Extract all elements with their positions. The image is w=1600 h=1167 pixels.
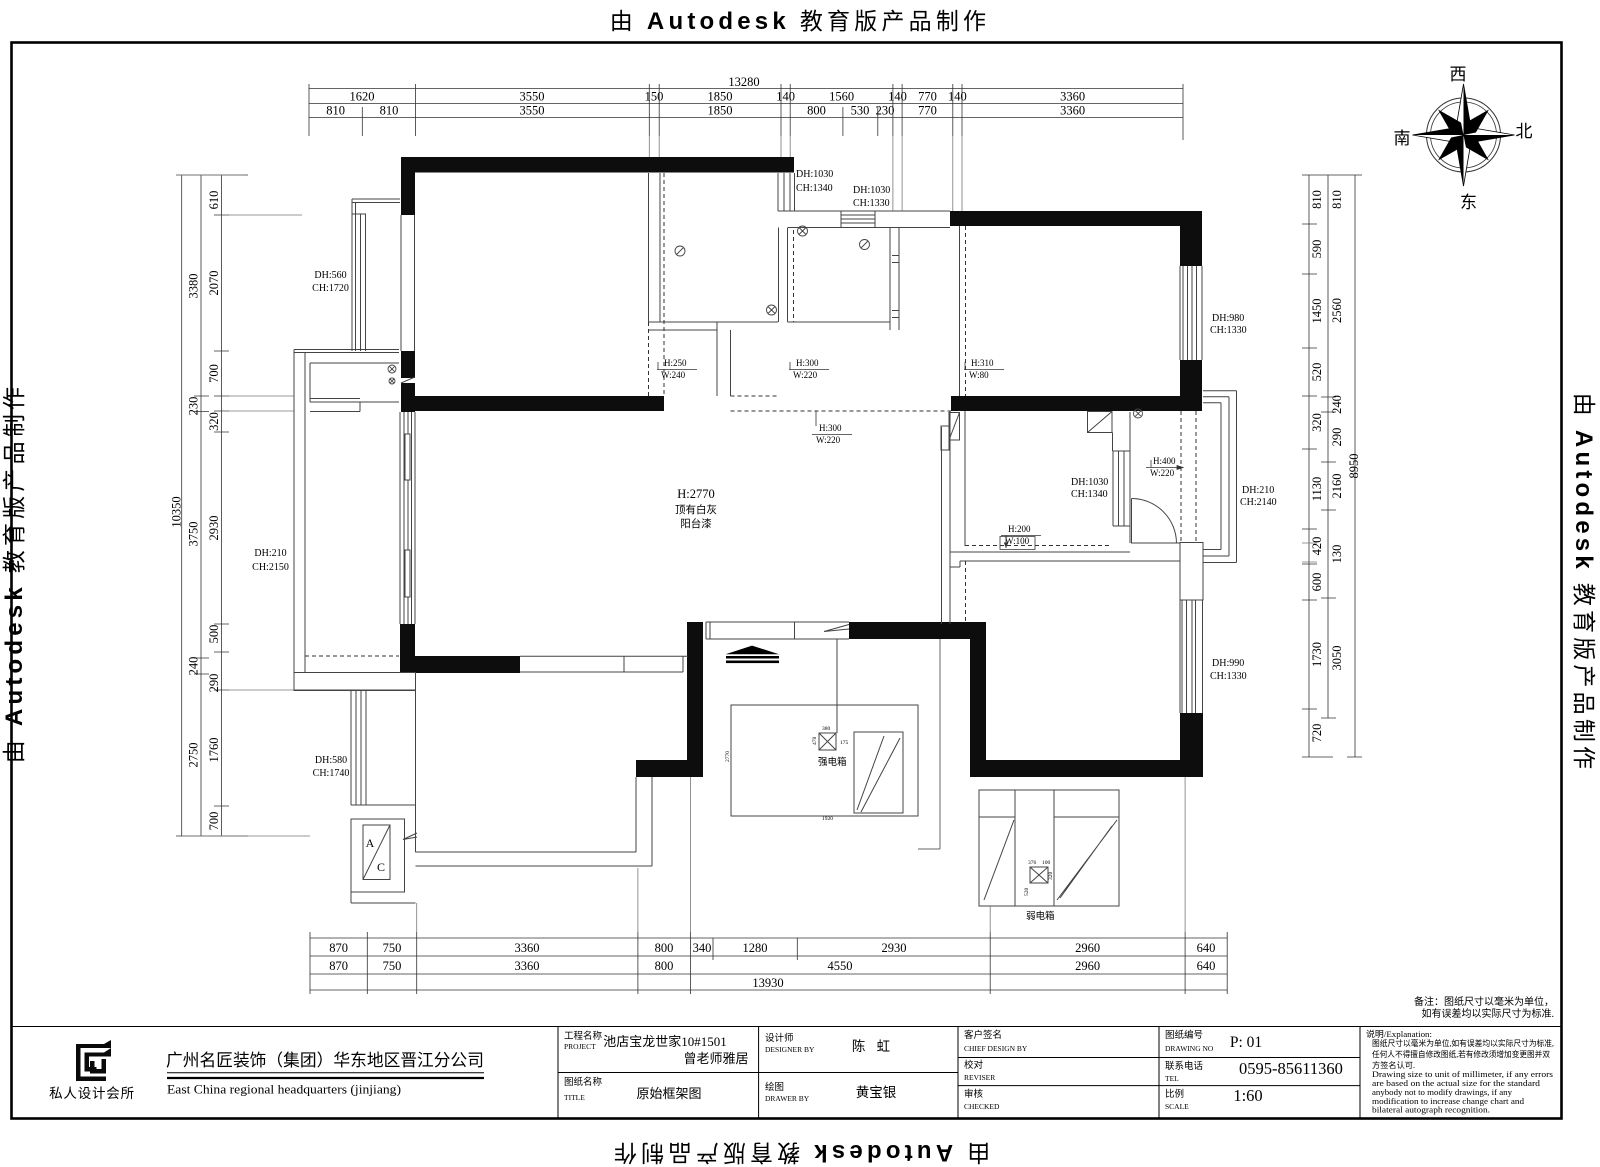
svg-text:2160: 2160 xyxy=(1330,474,1344,499)
svg-text:1730: 1730 xyxy=(1310,642,1324,667)
svg-text:广州名匠装饰（集团）华东地区晋江分公司: 广州名匠装饰（集团）华东地区晋江分公司 xyxy=(166,1051,484,1070)
svg-text:3380: 3380 xyxy=(187,274,201,299)
svg-text:810: 810 xyxy=(380,104,399,118)
svg-text:530: 530 xyxy=(851,104,870,118)
svg-text:1280: 1280 xyxy=(743,941,768,955)
svg-text:610: 610 xyxy=(207,191,221,210)
svg-text:DRAWING NO: DRAWING NO xyxy=(1165,1044,1214,1053)
svg-text:W:80: W:80 xyxy=(969,370,989,380)
svg-text:2750: 2750 xyxy=(187,743,201,768)
svg-text:770: 770 xyxy=(918,104,937,118)
svg-text:140: 140 xyxy=(776,90,795,104)
svg-text:340: 340 xyxy=(693,941,712,955)
svg-text:2930: 2930 xyxy=(207,516,221,541)
svg-text:240: 240 xyxy=(187,657,201,676)
svg-text:CH:1330: CH:1330 xyxy=(1210,671,1247,682)
svg-text:REVISER: REVISER xyxy=(964,1073,995,1082)
svg-text:2770: 2770 xyxy=(725,751,731,762)
svg-text:East China regional headquarte: East China regional headquarters (jinjia… xyxy=(167,1083,401,1097)
svg-text:CH:1740: CH:1740 xyxy=(313,768,350,779)
svg-text:810: 810 xyxy=(1330,190,1344,209)
svg-text:320: 320 xyxy=(1310,413,1324,432)
svg-text:640: 640 xyxy=(1197,959,1216,973)
svg-text:DRAWER BY: DRAWER BY xyxy=(765,1094,810,1103)
svg-text:W:220: W:220 xyxy=(1150,468,1175,478)
svg-text:图纸名称: 图纸名称 xyxy=(564,1076,603,1088)
svg-text:500: 500 xyxy=(207,625,221,644)
svg-text:750: 750 xyxy=(383,941,402,955)
svg-text:870: 870 xyxy=(329,941,348,955)
svg-text:TEL: TEL xyxy=(1165,1074,1179,1083)
svg-text:CH:1330: CH:1330 xyxy=(853,198,890,209)
svg-text:2560: 2560 xyxy=(1330,298,1344,323)
svg-text:顶有白灰: 顶有白灰 xyxy=(675,503,717,516)
svg-text:600: 600 xyxy=(1310,573,1324,592)
svg-text:150: 150 xyxy=(645,90,664,104)
svg-text:北: 北 xyxy=(1516,122,1533,141)
svg-text:阳台漆: 阳台漆 xyxy=(680,517,712,530)
svg-text:2960: 2960 xyxy=(1075,941,1100,955)
svg-text:640: 640 xyxy=(1197,941,1216,955)
svg-text:130: 130 xyxy=(1330,545,1344,564)
svg-text:800: 800 xyxy=(807,104,826,118)
svg-text:0595-85611360: 0595-85611360 xyxy=(1239,1059,1343,1078)
svg-text:DH:210: DH:210 xyxy=(254,548,286,559)
svg-text:750: 750 xyxy=(383,959,402,973)
svg-text:东: 东 xyxy=(1460,193,1477,212)
svg-text:376: 376 xyxy=(1028,860,1037,866)
svg-text:C: C xyxy=(377,860,385,874)
svg-text:池店宝龙世家10#1501: 池店宝龙世家10#1501 xyxy=(603,1034,727,1049)
svg-text:PROJECT: PROJECT xyxy=(564,1042,596,1051)
svg-text:H:200: H:200 xyxy=(1008,524,1031,534)
svg-text:H:300: H:300 xyxy=(796,358,819,368)
svg-text:如有误差均以实际尺寸为标准.: 如有误差均以实际尺寸为标准. xyxy=(1422,1007,1555,1020)
svg-text:H:300: H:300 xyxy=(819,423,842,433)
svg-text:校对: 校对 xyxy=(964,1059,984,1071)
svg-text:590: 590 xyxy=(1310,240,1324,259)
svg-text:770: 770 xyxy=(918,90,937,104)
svg-text:任何人不得擅自修改图纸,若有修改须增加变更图并双: 任何人不得擅自修改图纸,若有修改须增加变更图并双 xyxy=(1372,1049,1550,1059)
svg-text:720: 720 xyxy=(1310,724,1324,743)
svg-text:H:2770: H:2770 xyxy=(677,487,715,501)
svg-text:CHIEF DESIGN BY: CHIEF DESIGN BY xyxy=(964,1044,1028,1053)
svg-text:DH:980: DH:980 xyxy=(1212,313,1244,324)
svg-text:图纸编号: 图纸编号 xyxy=(1165,1029,1203,1041)
svg-text:设计师: 设计师 xyxy=(765,1032,794,1044)
svg-text:290: 290 xyxy=(207,674,221,693)
svg-text:W:220: W:220 xyxy=(816,435,841,445)
svg-text:CH:1340: CH:1340 xyxy=(796,183,833,194)
svg-text:810: 810 xyxy=(1310,190,1324,209)
svg-text:W:240: W:240 xyxy=(661,370,686,380)
svg-text:黄宝银: 黄宝银 xyxy=(856,1085,897,1100)
svg-text:绘图: 绘图 xyxy=(765,1081,784,1093)
svg-text:3360: 3360 xyxy=(515,959,540,973)
svg-text:强电箱: 强电箱 xyxy=(818,756,847,768)
svg-text:西: 西 xyxy=(1450,65,1467,84)
svg-text:CHECKED: CHECKED xyxy=(964,1102,1000,1111)
svg-text:700: 700 xyxy=(207,364,221,383)
svg-text:240: 240 xyxy=(1330,395,1344,414)
svg-text:A: A xyxy=(366,836,375,850)
svg-text:弱电箱: 弱电箱 xyxy=(1026,910,1055,922)
svg-text:3050: 3050 xyxy=(1330,646,1344,671)
svg-text:联系电话: 联系电话 xyxy=(1165,1060,1204,1072)
svg-text:3360: 3360 xyxy=(515,941,540,955)
svg-text:工程名称: 工程名称 xyxy=(564,1030,603,1042)
svg-text:DH:580: DH:580 xyxy=(315,755,347,766)
svg-text:陈 虹: 陈 虹 xyxy=(852,1038,894,1054)
svg-text:3360: 3360 xyxy=(1060,90,1085,104)
svg-text:380: 380 xyxy=(822,726,831,732)
svg-text:DH:1030: DH:1030 xyxy=(853,185,890,196)
svg-text:520: 520 xyxy=(1024,888,1030,897)
svg-text:1920: 1920 xyxy=(822,816,833,822)
svg-text:10350: 10350 xyxy=(170,496,184,527)
svg-text:bilateral autograph recognitio: bilateral autograph recognition. xyxy=(1372,1105,1490,1115)
svg-text:CH:2140: CH:2140 xyxy=(1240,497,1277,508)
svg-text:800: 800 xyxy=(655,959,674,973)
svg-text:3750: 3750 xyxy=(187,522,201,547)
svg-text:2960: 2960 xyxy=(1075,959,1100,973)
svg-text:客户签名: 客户签名 xyxy=(964,1029,1002,1041)
svg-text:1:60: 1:60 xyxy=(1233,1086,1262,1105)
svg-text:2930: 2930 xyxy=(882,941,907,955)
svg-text:SCALE: SCALE xyxy=(1165,1102,1189,1111)
svg-text:478: 478 xyxy=(812,737,818,746)
svg-text:审核: 审核 xyxy=(964,1088,984,1100)
svg-text:1560: 1560 xyxy=(829,90,854,104)
svg-text:1130: 1130 xyxy=(1310,477,1324,502)
svg-text:CH:1330: CH:1330 xyxy=(1210,325,1247,336)
svg-text:290: 290 xyxy=(1330,428,1344,447)
svg-text:CH:2150: CH:2150 xyxy=(252,562,289,573)
svg-text:图纸尺寸以毫米为单位,如有误差均以实际尺寸为标准,: 图纸尺寸以毫米为单位,如有误差均以实际尺寸为标准, xyxy=(1372,1038,1554,1048)
svg-text:原始框架图: 原始框架图 xyxy=(636,1086,701,1101)
svg-text:TITLE: TITLE xyxy=(564,1093,585,1102)
svg-text:DH:560: DH:560 xyxy=(314,270,346,281)
svg-text:比例: 比例 xyxy=(1165,1088,1184,1100)
svg-text:DH:990: DH:990 xyxy=(1212,658,1244,669)
svg-text:H:250: H:250 xyxy=(664,358,687,368)
svg-text:140: 140 xyxy=(948,90,967,104)
svg-text:DESIGNER BY: DESIGNER BY xyxy=(765,1045,815,1054)
svg-text:175: 175 xyxy=(840,740,849,746)
svg-text:H:400: H:400 xyxy=(1153,456,1176,466)
svg-text:1850: 1850 xyxy=(708,104,733,118)
svg-text:DH:1030: DH:1030 xyxy=(1071,477,1108,488)
svg-text:4550: 4550 xyxy=(828,959,853,973)
svg-text:P: 01: P: 01 xyxy=(1230,1034,1262,1051)
svg-text:140: 140 xyxy=(888,90,907,104)
svg-text:1620: 1620 xyxy=(350,90,375,104)
svg-text:800: 800 xyxy=(655,941,674,955)
svg-text:3360: 3360 xyxy=(1060,104,1085,118)
svg-text:私人设计会所: 私人设计会所 xyxy=(49,1086,135,1101)
svg-text:3550: 3550 xyxy=(520,90,545,104)
svg-text:南: 南 xyxy=(1394,129,1411,148)
svg-text:700: 700 xyxy=(207,812,221,831)
svg-text:1760: 1760 xyxy=(207,738,221,763)
svg-text:曾老师雅居: 曾老师雅居 xyxy=(683,1051,748,1066)
svg-text:420: 420 xyxy=(1310,537,1324,556)
svg-text:100: 100 xyxy=(1042,860,1051,866)
svg-text:1450: 1450 xyxy=(1310,299,1324,324)
svg-text:320: 320 xyxy=(1048,872,1054,881)
svg-text:230: 230 xyxy=(187,397,201,416)
svg-text:CH:1720: CH:1720 xyxy=(312,283,349,294)
svg-text:320: 320 xyxy=(207,412,221,431)
svg-text:1850: 1850 xyxy=(708,90,733,104)
svg-text:3550: 3550 xyxy=(520,104,545,118)
svg-text:520: 520 xyxy=(1310,363,1324,382)
svg-text:备注：图纸尺寸以毫米为单位，: 备注：图纸尺寸以毫米为单位， xyxy=(1414,995,1554,1008)
svg-text:H:310: H:310 xyxy=(971,358,994,368)
svg-text:810: 810 xyxy=(326,104,345,118)
svg-text:2070: 2070 xyxy=(207,271,221,296)
svg-text:W:100: W:100 xyxy=(1005,536,1030,546)
svg-text:CH:1340: CH:1340 xyxy=(1071,489,1108,500)
svg-text:230: 230 xyxy=(876,104,895,118)
svg-text:870: 870 xyxy=(329,959,348,973)
svg-text:13280: 13280 xyxy=(728,75,759,89)
svg-text:DH:210: DH:210 xyxy=(1242,485,1274,496)
svg-text:DH:1030: DH:1030 xyxy=(796,169,833,180)
svg-text:说明/Explanation:: 说明/Explanation: xyxy=(1366,1029,1432,1039)
svg-text:8950: 8950 xyxy=(1347,454,1361,479)
svg-text:W:220: W:220 xyxy=(793,370,818,380)
svg-text:13930: 13930 xyxy=(752,976,783,990)
